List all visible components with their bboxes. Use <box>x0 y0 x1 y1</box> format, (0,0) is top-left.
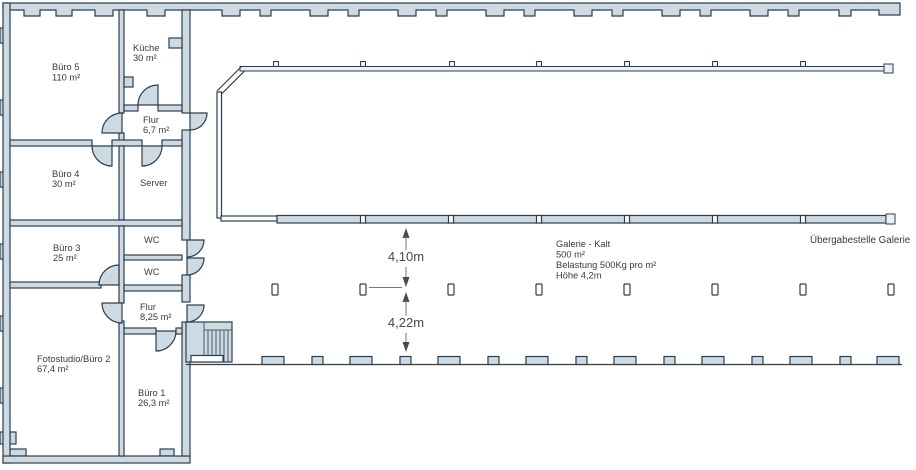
door-wc1-hall <box>187 240 204 257</box>
room-area-buero3: 25 m² <box>53 253 77 263</box>
top-wall <box>3 3 900 16</box>
room-area-fotostudio: 67,4 m² <box>37 364 69 374</box>
door-buero5 <box>102 113 122 133</box>
room-label-kueche: Küche <box>133 43 159 53</box>
staircase <box>186 305 232 362</box>
room-area-kueche: 30 m² <box>133 53 157 63</box>
gallery-info-line1: Galerie - Kalt <box>556 239 611 249</box>
mezzanine-left-edge <box>217 92 222 218</box>
dimension-upper: 4,10m <box>369 228 424 288</box>
door-fotostudio <box>102 303 122 323</box>
pilaster <box>10 449 26 456</box>
room-label-wc2: WC <box>144 267 160 277</box>
door-server <box>142 146 162 166</box>
room-area-buero4: 30 m² <box>52 179 76 189</box>
mezzanine-outline <box>217 62 895 225</box>
door-buero3 <box>99 265 119 285</box>
room-label-buero4: Büro 4 <box>52 169 79 179</box>
outer-walls <box>0 3 902 463</box>
room-label-flur-og: Flur <box>143 115 159 125</box>
room-label-buero5: Büro 5 <box>52 62 79 72</box>
gallery-info-line3: Belastung 500Kg pro m² <box>556 260 656 270</box>
door-wc2-hall <box>187 258 204 275</box>
office-right-wall <box>182 10 190 456</box>
room-label-server: Server <box>140 178 167 188</box>
door-flur2-hall <box>187 305 204 322</box>
room-area-flur-eg: 8,25 m² <box>140 312 172 322</box>
floor-plan-svg: 4,10m 4,22m Büro 5 110 m² Küche 30 m² Fl… <box>0 0 916 470</box>
dimension-lower-label: 4,22m <box>388 315 424 330</box>
pilaster <box>10 432 16 444</box>
door-buero1 <box>156 331 176 351</box>
room-label-wc1: WC <box>144 235 160 245</box>
office-bottom-wall <box>3 456 190 463</box>
door-flur1-hall <box>190 113 207 130</box>
door-kueche <box>138 85 158 105</box>
room-label-buero3: Büro 3 <box>53 243 80 253</box>
floor-plan: 4,10m 4,22m Büro 5 110 m² Küche 30 m² Fl… <box>0 0 916 470</box>
door-buero4 <box>92 146 112 166</box>
mezzanine-top-rail <box>240 67 886 72</box>
gallery-info-line4: Höhe 4,2m <box>556 271 602 281</box>
hall-bottom-wall <box>186 357 902 365</box>
dimension-upper-label: 4,10m <box>388 249 424 264</box>
room-label-buero1: Büro 1 <box>138 388 165 398</box>
room-area-flur-og: 6,7 m² <box>143 125 169 135</box>
hall-annotations: Galerie - Kalt 500 m² Belastung 500Kg pr… <box>556 235 911 281</box>
room-area-buero1: 26,3 m² <box>138 398 170 408</box>
dimension-lower: 4,22m <box>388 292 424 352</box>
column-row <box>272 284 894 295</box>
room-label-fotostudio: Fotostudio/Büro 2 <box>37 354 110 364</box>
pilaster <box>160 449 174 456</box>
mezzanine-bottom-wall <box>277 216 886 224</box>
handover-label: Übergabestelle Galerie <box>810 235 911 246</box>
room-area-buero5: 110 m² <box>52 73 80 83</box>
gallery-info-line2: 500 m² <box>556 250 585 260</box>
left-wall <box>3 3 10 463</box>
room-label-flur-eg: Flur <box>140 302 156 312</box>
